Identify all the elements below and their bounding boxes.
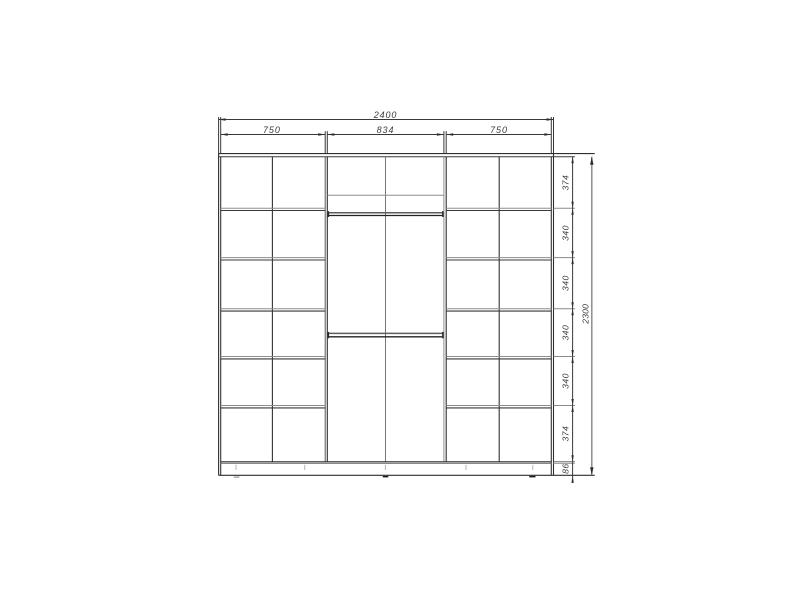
svg-text:340: 340 xyxy=(560,225,570,241)
svg-text:750: 750 xyxy=(490,125,508,135)
svg-text:750: 750 xyxy=(263,125,281,135)
svg-text:340: 340 xyxy=(560,275,570,291)
svg-text:2300: 2300 xyxy=(580,304,590,325)
svg-text:834: 834 xyxy=(377,125,395,135)
svg-text:340: 340 xyxy=(560,373,570,389)
svg-text:374: 374 xyxy=(560,175,570,191)
svg-text:86: 86 xyxy=(560,463,570,474)
svg-text:2400: 2400 xyxy=(373,110,398,120)
svg-text:374: 374 xyxy=(560,426,570,442)
svg-text:340: 340 xyxy=(560,325,570,341)
